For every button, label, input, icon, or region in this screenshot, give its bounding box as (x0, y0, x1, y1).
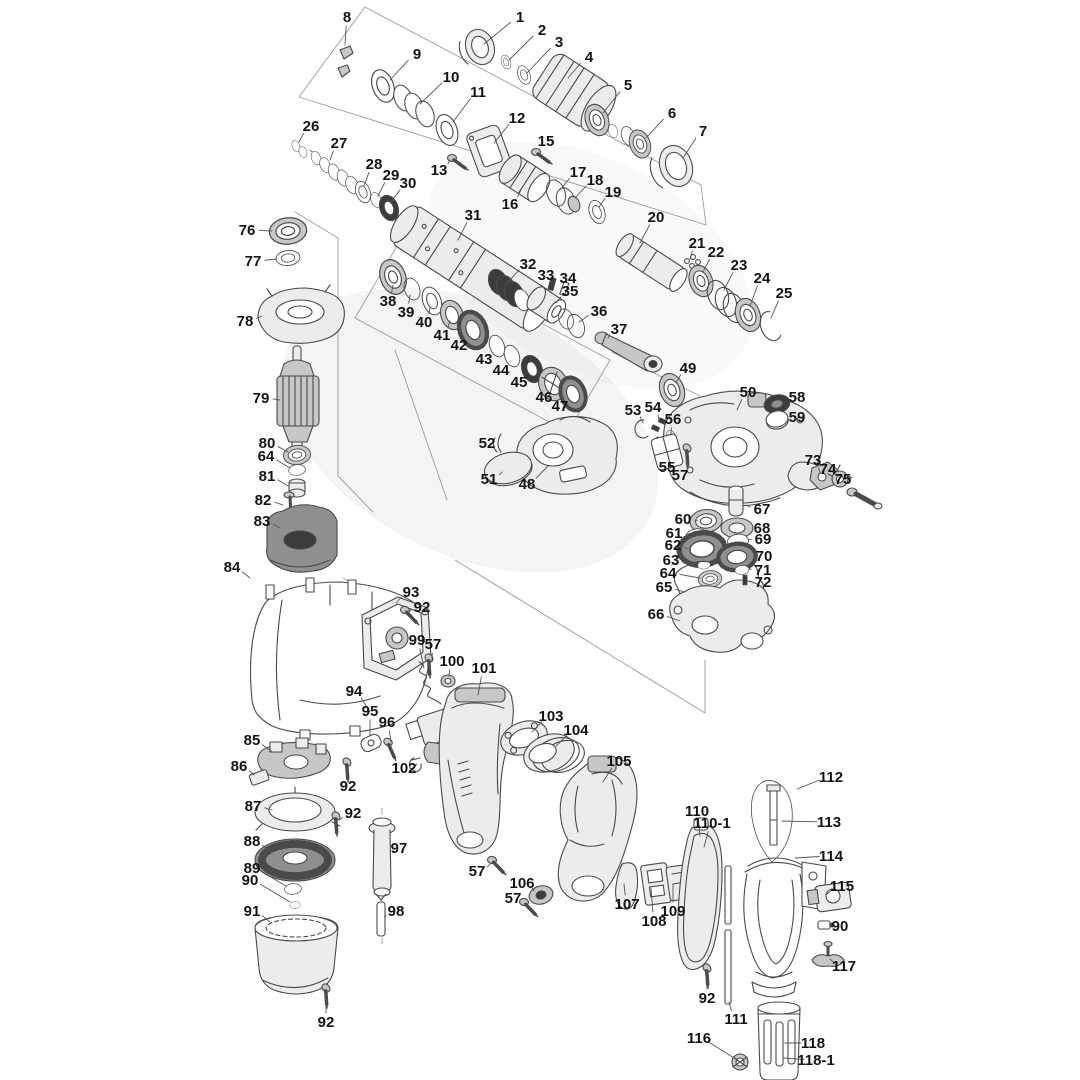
part-label-67: 67 (754, 501, 771, 518)
part-75-lever (847, 488, 882, 509)
leader-line (484, 22, 510, 44)
part-118-grip (758, 1002, 800, 1080)
part-label-40: 40 (416, 314, 433, 331)
leader-line (278, 480, 288, 486)
part-label-103: 103 (538, 708, 563, 725)
part-label-86: 86 (231, 758, 248, 775)
part-label-4: 4 (585, 49, 594, 66)
leader-line (345, 26, 346, 45)
part-label-92: 92 (414, 599, 431, 616)
part-label-85: 85 (244, 732, 261, 749)
part-114-holder (744, 858, 826, 997)
part-label-36: 36 (591, 303, 608, 320)
part-label-90: 90 (832, 918, 849, 935)
part-label-35: 35 (562, 283, 579, 300)
part-label-95: 95 (362, 703, 379, 720)
part-label-51: 51 (481, 471, 498, 488)
part-label-10: 10 (443, 69, 460, 86)
part-label-25: 25 (776, 285, 793, 302)
part-label-38: 38 (380, 293, 397, 310)
part-8-clips (338, 46, 353, 77)
part-label-92: 92 (318, 1014, 335, 1031)
part-label-39: 39 (398, 304, 415, 321)
leader-line (680, 574, 700, 578)
part-label-98: 98 (388, 903, 405, 920)
part-label-11: 11 (470, 84, 486, 101)
part-83-stator (267, 505, 337, 572)
part-label-50: 50 (740, 384, 757, 401)
leader-line (390, 60, 408, 80)
part-label-100: 100 (439, 653, 464, 670)
part-111-rod (725, 866, 731, 1004)
part-label-92: 92 (340, 778, 357, 795)
leader-line (509, 36, 533, 60)
part-label-110-1: 110-1 (693, 815, 731, 832)
part-label-57: 57 (505, 890, 522, 907)
part-91-fan-housing (255, 915, 338, 994)
part-label-64: 64 (258, 448, 275, 465)
part-label-88: 88 (244, 833, 261, 850)
part-label-16: 16 (502, 196, 519, 213)
part-label-18: 18 (587, 172, 604, 189)
part-label-97: 97 (391, 840, 408, 857)
part-label-28: 28 (366, 156, 383, 173)
part-label-78: 78 (237, 313, 254, 330)
part-label-58: 58 (789, 389, 806, 406)
part-98-rod (377, 902, 385, 936)
part-label-87: 87 (245, 798, 262, 815)
part-110-grip-cover (678, 818, 722, 970)
part-label-46: 46 (536, 389, 553, 406)
leader-line (378, 183, 385, 196)
part-label-77: 77 (245, 253, 262, 270)
leader-line (795, 856, 819, 858)
part-label-53: 53 (625, 402, 642, 419)
part-label-45: 45 (511, 374, 528, 391)
part-101-housing (439, 683, 513, 854)
part-label-2: 2 (538, 22, 546, 39)
part-97-push-rod (369, 818, 395, 896)
leader-line (683, 138, 696, 158)
part-85-brush-assembly (258, 738, 331, 778)
part-label-42: 42 (451, 337, 468, 354)
part-label-111: 111 (724, 1011, 747, 1028)
part-label-116: 116 (687, 1030, 711, 1047)
part-label-33: 33 (538, 267, 555, 284)
part-label-13: 13 (431, 162, 448, 179)
part-label-44: 44 (493, 362, 510, 379)
part-67-piston (729, 486, 743, 516)
part-label-27: 27 (331, 135, 348, 152)
part-label-72: 72 (755, 574, 772, 591)
part-label-57: 57 (672, 467, 689, 484)
part-78-crank-cap (258, 285, 344, 343)
part-label-69: 69 (755, 531, 772, 548)
part-label-19: 19 (605, 184, 622, 201)
leader-line (420, 83, 442, 104)
part-label-3: 3 (555, 34, 563, 51)
part-label-21: 21 (689, 235, 706, 252)
part-label-8: 8 (343, 9, 351, 26)
part-label-75: 75 (835, 471, 852, 488)
part-label-91: 91 (244, 903, 261, 920)
part-label-20: 20 (648, 209, 665, 226)
part-1-chuck-cap (455, 25, 500, 71)
part-label-31: 31 (465, 207, 482, 224)
part-label-94: 94 (346, 683, 363, 700)
part-label-118: 118 (801, 1035, 825, 1052)
part-label-5: 5 (624, 77, 632, 94)
part-label-83: 83 (254, 513, 271, 530)
parts-diagram-canvas: 1234567891011121315161718192021222324252… (0, 0, 1080, 1080)
part-label-9: 9 (413, 46, 421, 63)
part-label-84: 84 (224, 559, 241, 576)
part-label-59: 59 (789, 409, 806, 426)
part-label-49: 49 (680, 360, 697, 377)
part-label-30: 30 (400, 175, 417, 192)
part-label-47: 47 (552, 398, 569, 415)
part-label-105: 105 (606, 753, 631, 770)
part-label-107: 107 (614, 896, 639, 913)
part-label-57: 57 (469, 863, 486, 880)
part-label-82: 82 (255, 492, 272, 509)
part-95-plate (359, 732, 383, 753)
part-label-48: 48 (519, 476, 536, 493)
leader-line (330, 151, 333, 160)
part-label-112: 112 (819, 769, 843, 786)
part-label-96: 96 (379, 714, 396, 731)
leader-line (453, 99, 470, 122)
part-label-115: 115 (830, 878, 854, 895)
part-label-79: 79 (253, 390, 270, 407)
part-label-32: 32 (520, 256, 537, 273)
part-label-41: 41 (434, 327, 451, 344)
leader-line (259, 230, 272, 231)
leader-line (771, 301, 778, 318)
part-label-6: 6 (668, 105, 676, 122)
part-label-23: 23 (731, 257, 748, 274)
exploded-view-svg: 1234567891011121315161718192021222324252… (0, 0, 1080, 1080)
part-label-24: 24 (754, 270, 771, 287)
part-label-92: 92 (699, 990, 716, 1007)
part-label-114: 114 (819, 848, 844, 865)
part-label-12: 12 (509, 110, 526, 127)
part-label-15: 15 (538, 133, 555, 150)
part-label-57: 57 (425, 636, 442, 653)
part-label-118-1: 118-1 (797, 1052, 835, 1069)
leader-line (646, 119, 663, 138)
part-label-37: 37 (611, 321, 628, 338)
part-label-102: 102 (391, 760, 416, 777)
part-label-93: 93 (403, 584, 420, 601)
part-116-nut (732, 1054, 748, 1070)
part-label-92: 92 (345, 805, 362, 822)
part-label-101: 101 (471, 660, 496, 677)
part-label-17: 17 (570, 164, 587, 181)
leader-line (275, 502, 283, 505)
part-label-81: 81 (259, 468, 276, 485)
part-label-99: 99 (409, 632, 426, 649)
leader-line (242, 572, 250, 578)
part-label-29: 29 (383, 167, 400, 184)
part-label-43: 43 (476, 351, 493, 368)
part-label-117: 117 (832, 958, 856, 975)
part-label-26: 26 (303, 118, 320, 135)
part-label-56: 56 (665, 411, 682, 428)
part-label-90: 90 (242, 872, 259, 889)
leader-line (709, 1042, 734, 1058)
leader-line (265, 259, 277, 260)
part-label-54: 54 (645, 399, 662, 416)
part-label-66: 66 (648, 606, 665, 623)
part-label-104: 104 (563, 722, 589, 739)
part-86-brush (249, 769, 270, 785)
leader-line (676, 589, 684, 592)
part-label-1: 1 (516, 9, 524, 26)
part-label-109: 109 (660, 903, 685, 920)
part-label-76: 76 (239, 222, 256, 239)
part-label-52: 52 (479, 435, 496, 452)
part-label-65: 65 (656, 579, 673, 596)
leader-line (797, 780, 820, 789)
leader-line (488, 864, 490, 867)
part-label-113: 113 (817, 814, 841, 831)
part-label-7: 7 (699, 123, 707, 140)
part-label-22: 22 (708, 244, 725, 261)
